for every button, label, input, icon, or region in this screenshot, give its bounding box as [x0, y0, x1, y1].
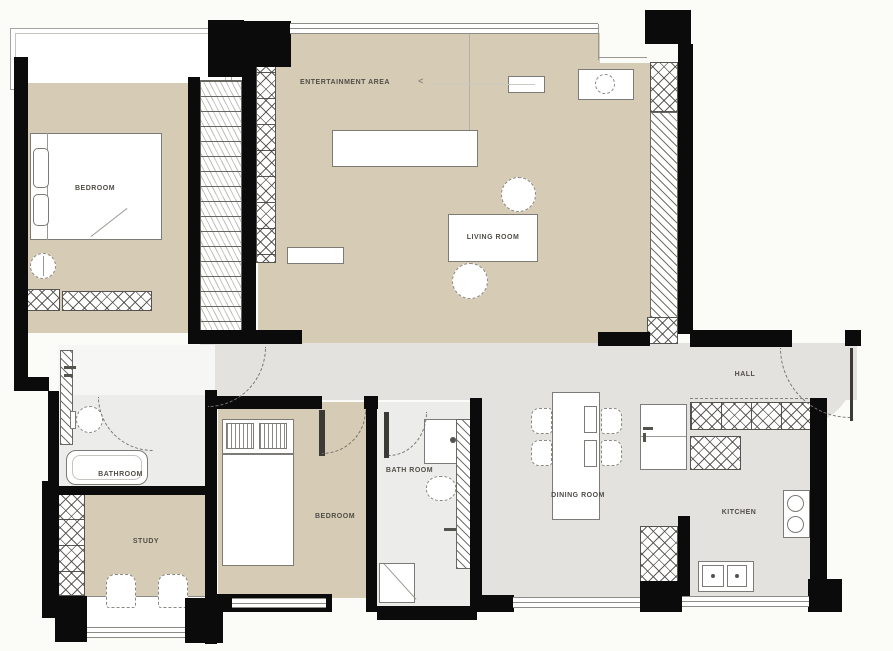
wall [810, 398, 827, 583]
wall [598, 332, 650, 346]
wall [55, 596, 87, 642]
burner-icon [787, 516, 804, 533]
toilet-second [426, 476, 456, 501]
window-kitchen [682, 596, 809, 607]
study-chair [158, 574, 188, 608]
shower-head-icon [64, 366, 76, 369]
wall [188, 77, 200, 332]
pillow [259, 423, 287, 449]
closet-cabinet-strip [256, 45, 276, 263]
tv-bench [287, 247, 344, 264]
dining-chair [531, 440, 552, 466]
sofa [332, 130, 478, 167]
room-label-living: LIVING ROOM [448, 234, 538, 241]
pillow [226, 423, 254, 449]
wall [678, 516, 690, 600]
bath2-wall-strip [456, 419, 471, 569]
wall [678, 44, 693, 334]
door-leaf-entry [850, 348, 853, 421]
drain-icon [711, 574, 715, 578]
dining-table-mark [584, 406, 597, 433]
wall [58, 486, 215, 495]
washing-machine-drum [595, 74, 615, 94]
window-dining [513, 597, 640, 608]
annotation-line [430, 84, 535, 85]
toilet-tank-master [70, 411, 76, 429]
room-label-bathroom-second: BATH ROOM [382, 467, 437, 474]
cabinet-door-swing-line [690, 398, 813, 401]
window-step-line [599, 57, 647, 58]
right-wall-cabinet [650, 112, 678, 343]
room-label-entertainment: ENTERTAINMENT AREA [300, 79, 390, 86]
window-entertainment-top [290, 23, 598, 34]
sideboard-shelf-line [641, 436, 686, 437]
direction-arrow-icon: < [415, 77, 427, 86]
pouf [452, 263, 488, 299]
dining-chair [601, 408, 622, 434]
sideboard-faucet-icon [643, 433, 646, 442]
wardrobe-hangers-cabinet [200, 80, 242, 332]
wall [690, 330, 792, 347]
wall [244, 21, 291, 67]
floor-plan: BEDROOM ENTERTAINMENT AREA < LIVING ROOM… [0, 0, 893, 651]
floor-living-area [258, 63, 650, 343]
window-study [87, 627, 185, 638]
stool-line [43, 256, 44, 276]
kitchen-mid-cabinet [690, 436, 741, 470]
wall [14, 57, 28, 391]
wall [366, 398, 377, 612]
wall [242, 66, 256, 332]
shower-head2-icon [444, 528, 456, 531]
wall [470, 398, 482, 612]
bed-second [222, 454, 294, 566]
partition-line [469, 33, 470, 131]
room-label-kitchen: KITCHEN [709, 509, 769, 516]
study-chair [106, 574, 136, 608]
wall [48, 391, 59, 483]
floor-entertainment-top [290, 33, 600, 65]
wall [808, 579, 842, 612]
doorway-cabinet [62, 291, 152, 311]
window-step-line [598, 24, 599, 60]
dining-table-mark [584, 440, 597, 467]
wall [640, 581, 682, 612]
room-label-study: STUDY [116, 538, 176, 545]
shower-valve-icon [64, 374, 73, 377]
window-bedroom-second [232, 598, 326, 608]
shower-second [379, 563, 415, 603]
room-label-bedroom-master: BEDROOM [55, 185, 135, 192]
wall [188, 330, 302, 344]
pillow [33, 148, 49, 188]
room-label-bathroom-master: BATHROOM [93, 471, 148, 478]
room-label-dining: DINING ROOM [548, 492, 608, 499]
wall [208, 20, 244, 77]
wall [845, 330, 861, 346]
room-label-bedroom-second: BEDROOM [305, 513, 365, 520]
sideboard-faucet-icon [643, 427, 653, 430]
kitchen-sideboard [640, 404, 687, 470]
pillow [33, 194, 49, 226]
bookcase [58, 492, 85, 596]
dining-chair [601, 440, 622, 466]
shower-wall-strip [60, 350, 73, 445]
drain-icon [735, 574, 739, 578]
wall [645, 10, 691, 44]
wall [480, 595, 514, 612]
wall [377, 606, 477, 620]
pouf [501, 177, 536, 212]
shower-tray-master [58, 345, 215, 395]
hall-corner-cabinet [647, 317, 678, 344]
dining-chair [531, 408, 552, 434]
wall [28, 377, 49, 391]
room-label-hall: HALL [715, 371, 775, 378]
burner-icon [787, 495, 804, 512]
kitchen-upper-cabinets [690, 402, 813, 430]
dresser-cabinet [24, 289, 60, 311]
right-wall-cabinet-top [650, 62, 678, 112]
